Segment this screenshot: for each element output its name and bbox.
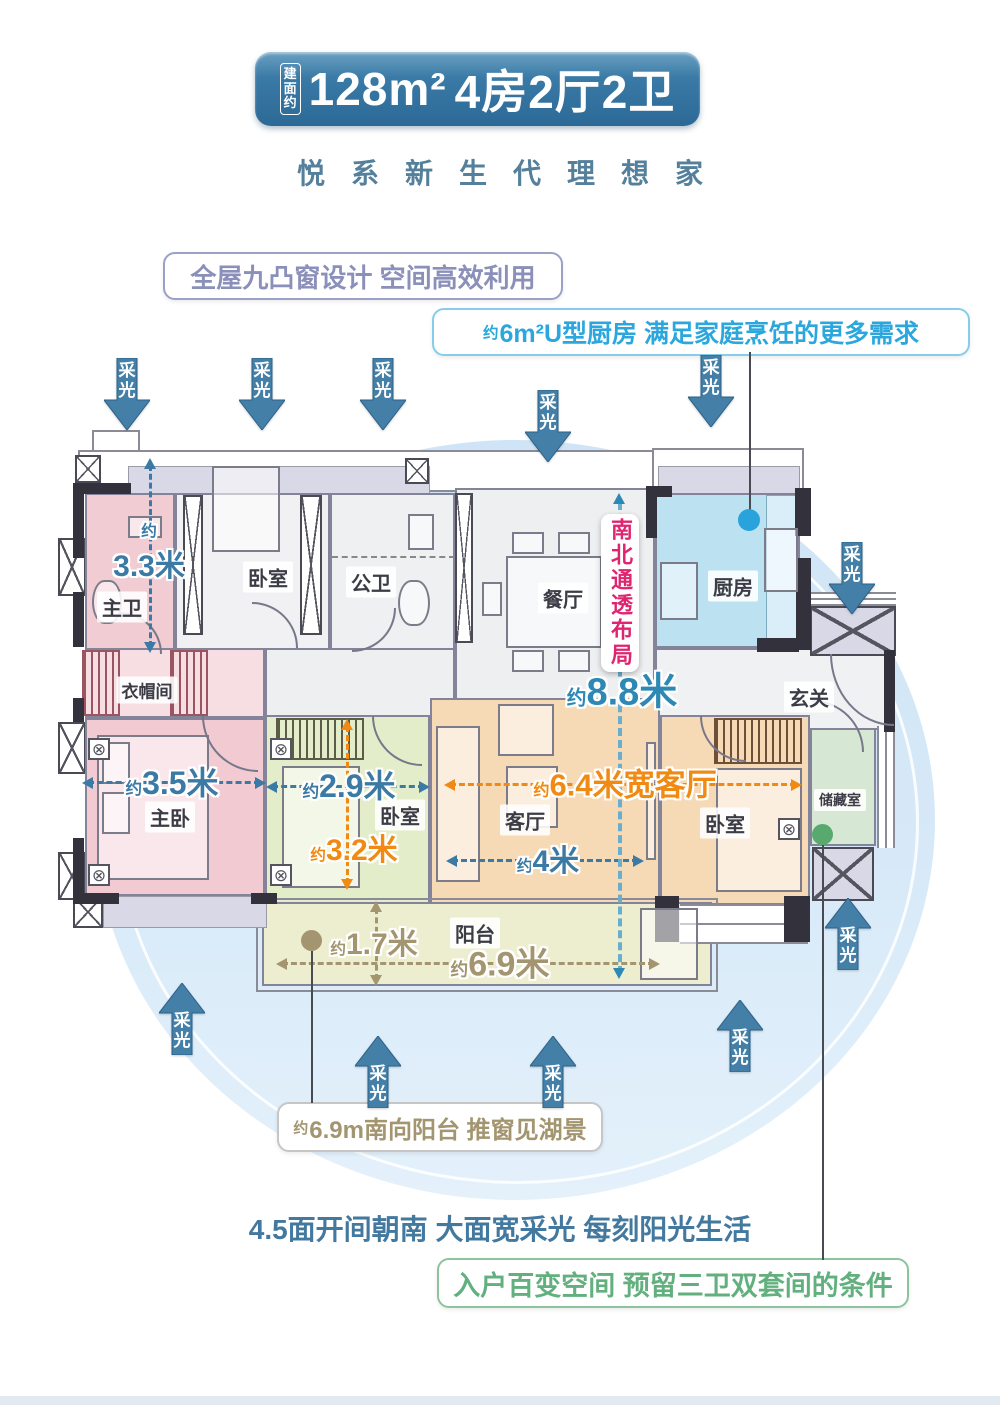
title-badge-prefix: 建面约 [280, 63, 301, 116]
ns-layout-text: 南北通透布局 [604, 518, 636, 668]
callout-kitchen-text: 6m²U型厨房 满足家庭烹饪的更多需求 [500, 314, 919, 350]
dim-label-6-4: 约6.4米宽客厅 [533, 760, 716, 805]
furniture-bed-bedroom2 [212, 466, 280, 552]
room-label-master-bath: 主卫 [97, 592, 147, 623]
daylight-label: 采光 [252, 361, 272, 401]
connector-storage [822, 845, 824, 1260]
dim-arrowhead [144, 642, 156, 653]
daylight-arrow: 采光 [360, 358, 406, 430]
bay-window-left-2 [58, 722, 86, 774]
daylight-label: 采光 [368, 1064, 388, 1104]
pillar-topmid [405, 458, 429, 484]
connector-dot-storage [812, 824, 833, 845]
daylight-arrow: 采光 [829, 542, 875, 614]
wall-segment [757, 638, 799, 652]
daylight-arrow: 采光 [525, 390, 571, 462]
furniture-chair [482, 582, 502, 616]
dashed-partition [332, 556, 455, 558]
furniture-toilet [398, 580, 430, 626]
room-label-bedroom2: 卧室 [243, 562, 293, 593]
title-badge: 建面约 128m² 4房2厅2卫 [255, 52, 700, 126]
dim-arrowhead [82, 777, 93, 789]
furniture-chair [512, 532, 544, 554]
room-label-kitchen: 厨房 [708, 571, 758, 602]
dim-arrowhead [266, 781, 277, 793]
dim-arrowhead [633, 855, 644, 867]
callout-balcony-prefix: 约 [293, 1117, 308, 1138]
dim-label-2-9: 约2.9米 [302, 761, 395, 807]
callout-balcony-text: 6.9m南向阳台 推窗见湖景 [309, 1110, 586, 1145]
window-band-storage [877, 726, 895, 848]
daylight-label: 采光 [730, 1028, 750, 1068]
room-label-master-bedroom: 主卧 [145, 802, 195, 833]
daylight-arrow: 采光 [355, 1036, 401, 1108]
title-badge-area: 128m² [309, 62, 447, 116]
room-label-cloakroom: 衣帽间 [117, 677, 178, 704]
dim-label-4: 约4米 [517, 836, 579, 880]
floorplan-poster: 建面约 128m² 4房2厅2卫 悦系新生代理想家 全屋九凸窗设计 空间高效利用… [0, 0, 1000, 1405]
daylight-label: 采光 [842, 545, 862, 585]
room-label-bedroom4: 卧室 [700, 808, 750, 839]
daylight-label: 采光 [838, 926, 858, 966]
subtitle: 悦系新生代理想家 [0, 152, 1000, 192]
room-label-living: 客厅 [500, 805, 550, 836]
dim-arrowhead [370, 901, 382, 912]
south-facing-slogan: 4.5面开间朝南 大面宽采光 每刻阳光生活 [0, 1208, 1000, 1248]
window-sill-kitchen [658, 466, 800, 496]
wall-lamp-icon: ⊗ [88, 738, 110, 760]
window-sill-master-south [103, 896, 267, 928]
dim-label-3-3: 约3.3米 [113, 519, 185, 585]
room-label-entry: 玄关 [784, 682, 834, 713]
daylight-arrow: 采光 [825, 898, 871, 970]
dim-arrowhead [613, 968, 625, 979]
pillar-topleft [75, 455, 101, 483]
connector-dot-kitchen [738, 509, 760, 531]
callout-balcony: 约 6.9m南向阳台 推窗见湖景 [277, 1102, 603, 1152]
dim-arrowhead [276, 958, 287, 970]
wall-segment [784, 896, 810, 942]
callout-kitchen-prefix: 约 [483, 321, 499, 343]
daylight-label: 采光 [538, 393, 558, 433]
ns-layout-badge: 南北通透布局 [601, 514, 639, 672]
wall-segment [73, 893, 119, 904]
corridor [265, 648, 455, 718]
dim-arrowhead [791, 779, 802, 791]
furniture-basin [408, 514, 434, 550]
callout-kitchen: 约 6m²U型厨房 满足家庭烹饪的更多需求 [432, 308, 970, 356]
dim-arrowhead [649, 958, 660, 970]
title-badge-layout: 4房2厅2卫 [455, 56, 676, 122]
daylight-arrow: 采光 [530, 1036, 576, 1108]
connector-kitchen [749, 352, 751, 514]
dim-arrowhead [613, 493, 625, 504]
wall-lamp-icon: ⊗ [88, 864, 110, 886]
dim-arrowhead [144, 458, 156, 469]
callout-windows: 全屋九凸窗设计 空间高效利用 [163, 252, 563, 300]
daylight-arrow: 采光 [688, 355, 734, 427]
daylight-label: 采光 [373, 361, 393, 401]
dim-arrowhead [419, 781, 430, 793]
dim-arrowhead [444, 779, 455, 791]
furniture-armchair [498, 704, 554, 756]
callout-entry: 入户百变空间 预留三卫双套间的条件 [437, 1258, 909, 1308]
closet-column [183, 495, 203, 635]
daylight-arrow: 采光 [239, 358, 285, 430]
wall-segment [73, 698, 84, 722]
furniture-chair [512, 650, 544, 672]
dim-label-3-2: 约3.2米 [310, 825, 397, 869]
connector-balcony [311, 951, 313, 1103]
furniture-stove [764, 528, 798, 592]
room-label-public-bath: 公卫 [346, 567, 396, 598]
connector-dot-balcony [301, 930, 322, 951]
closet-column [300, 495, 322, 635]
dim-arrowhead [341, 719, 353, 730]
wall-lamp-icon: ⊗ [778, 818, 800, 840]
daylight-label: 采光 [543, 1064, 563, 1104]
wall-segment [73, 483, 84, 558]
room-label-storage: 储藏室 [814, 789, 866, 811]
daylight-arrow: 采光 [159, 983, 205, 1055]
daylight-label: 采光 [172, 1011, 192, 1051]
wardrobe-icon [82, 650, 120, 716]
callout-entry-text: 入户百变空间 预留三卫双套间的条件 [453, 1264, 893, 1303]
dim-label-6-9: 约6.9米 [451, 937, 550, 986]
dim-arrowhead [446, 855, 457, 867]
daylight-label: 采光 [117, 361, 137, 401]
callout-windows-text: 全屋九凸窗设计 空间高效利用 [190, 258, 535, 295]
bottom-edge [0, 1396, 1000, 1405]
dim-label-1-7: 约1.7米 [330, 919, 417, 963]
dim-arrowhead [255, 777, 266, 789]
dim-arrowhead [341, 879, 353, 890]
wall-segment [646, 486, 657, 538]
daylight-arrow: 采光 [104, 358, 150, 430]
daylight-arrow: 采光 [717, 1000, 763, 1072]
furniture-kitchen-sink [660, 562, 698, 620]
furniture-chair [558, 532, 590, 554]
room-label-dining: 餐厅 [538, 583, 588, 614]
wall-segment [251, 893, 277, 904]
wall-lamp-icon: ⊗ [270, 864, 292, 886]
daylight-label: 采光 [701, 358, 721, 398]
dim-label-3-5: 约3.5米 [125, 758, 218, 804]
dim-arrowhead [370, 975, 382, 986]
wall-segment [73, 592, 84, 647]
closet-column [455, 493, 473, 643]
wall-segment [796, 558, 811, 650]
wall-lamp-icon: ⊗ [270, 738, 292, 760]
